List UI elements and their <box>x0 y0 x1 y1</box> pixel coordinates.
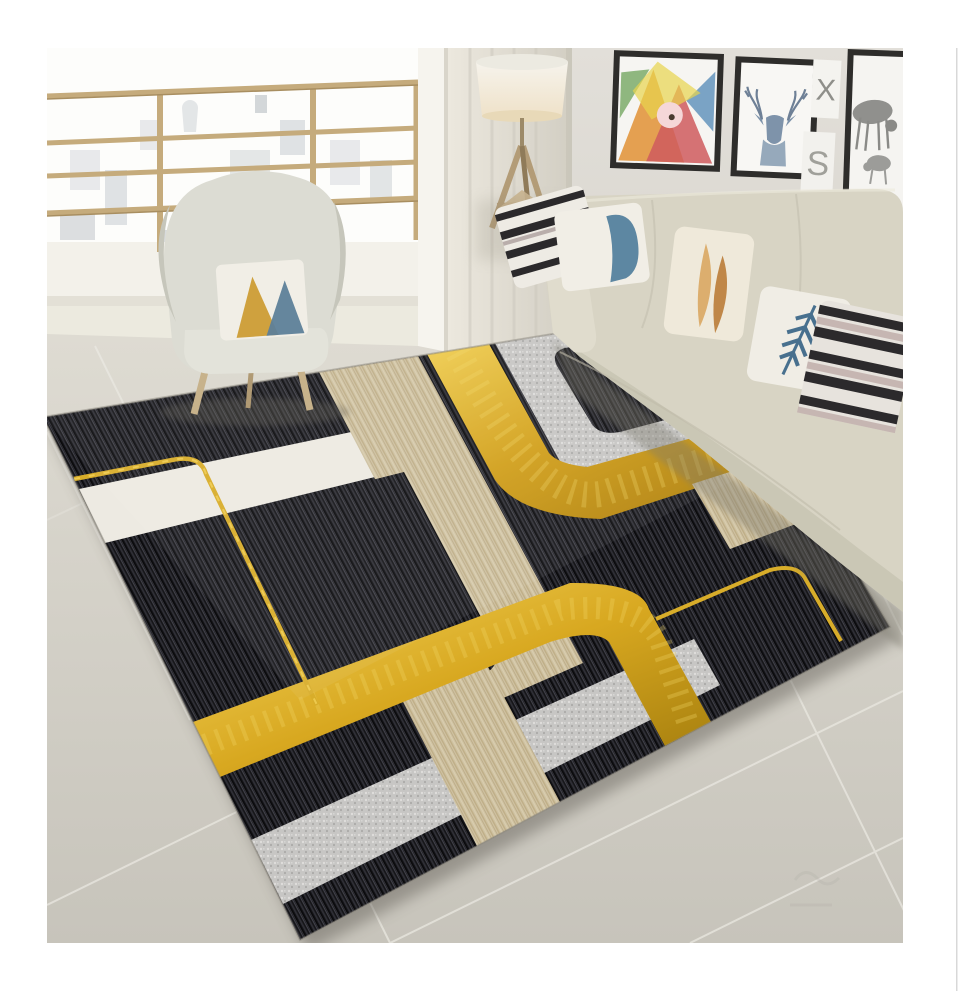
wall-pillar <box>418 48 448 360</box>
gallery-frame-abstract <box>610 50 724 172</box>
throw-pillow-blue-shape <box>553 202 650 292</box>
product-photo-canvas: X S <box>0 0 961 991</box>
armchair-shadow <box>160 398 350 426</box>
screenshot-root: X S <box>0 0 961 991</box>
letter-card-s: S <box>800 131 835 195</box>
letter-x: X <box>815 73 837 107</box>
letter-card-x: X <box>811 59 842 118</box>
throw-pillow-tan-leaf <box>663 226 756 343</box>
lamp-shade <box>476 62 568 116</box>
living-room-photo: X S <box>43 48 920 952</box>
letter-s: S <box>806 144 831 183</box>
right-edge-rule <box>956 48 958 991</box>
lamp-stem <box>520 118 524 146</box>
armchair-pillow <box>215 259 308 341</box>
